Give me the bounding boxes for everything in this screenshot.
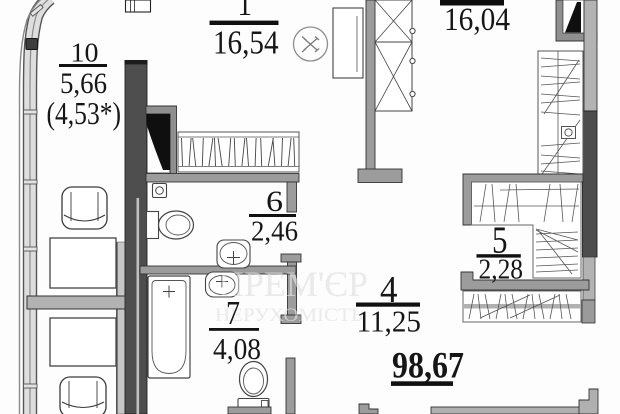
svg-text:98,67: 98,67 [392, 346, 464, 387]
svg-text:2,28: 2,28 [479, 253, 524, 285]
svg-text:ПРЕМ'ЄР: ПРЕМ'ЄР [218, 264, 368, 304]
svg-text:6: 6 [266, 185, 283, 218]
svg-text:16,54: 16,54 [213, 25, 279, 62]
svg-text:(4,53*): (4,53*) [47, 95, 122, 131]
svg-text:2,46: 2,46 [251, 216, 298, 248]
svg-text:7: 7 [226, 295, 240, 332]
svg-text:1: 1 [238, 0, 253, 23]
svg-text:11,25: 11,25 [357, 304, 422, 339]
svg-text:16,04: 16,04 [444, 2, 510, 38]
svg-text:4,08: 4,08 [213, 331, 261, 366]
svg-text:10: 10 [71, 38, 99, 68]
